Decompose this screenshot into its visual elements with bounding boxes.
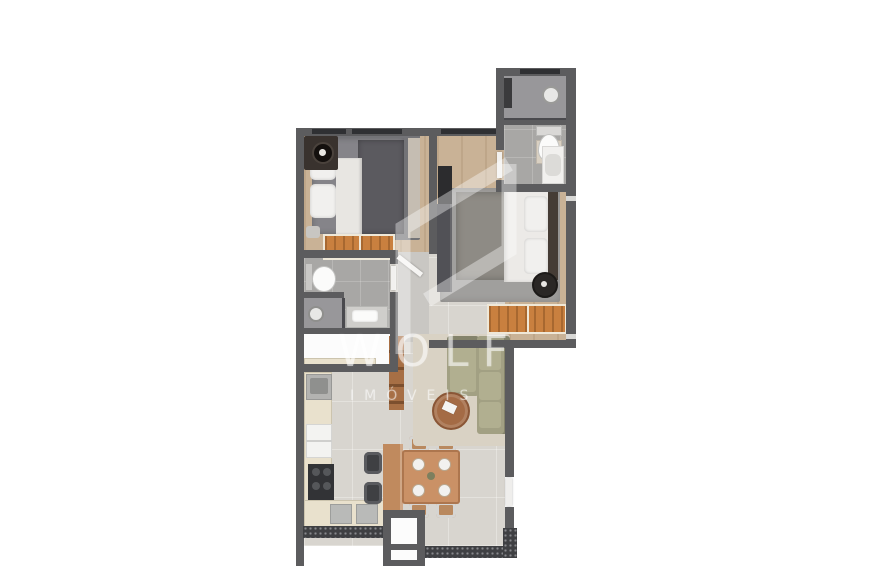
kitchen-fridge-line — [306, 440, 332, 442]
dining-plate-icon — [438, 484, 451, 497]
dining-plate-icon — [412, 458, 425, 471]
bathroom2-toilet — [312, 266, 336, 292]
floor-plan-image: WOLF IMÓVEIS — [0, 0, 870, 580]
wall-bathroom2-divider — [304, 292, 344, 298]
wall-bathroom1-left — [496, 68, 504, 150]
bathroom2-towels — [352, 310, 378, 322]
bedroom2-pillow — [524, 238, 548, 274]
window-top — [312, 129, 346, 134]
bedroom2-pillow — [524, 196, 548, 232]
kitchen-window-sill — [303, 526, 383, 538]
kitchen-counter-sink — [356, 504, 378, 524]
sofa-cushion — [479, 402, 501, 428]
dining-plate-icon — [412, 484, 425, 497]
window-bathroom1 — [520, 69, 560, 74]
entry-opening — [391, 518, 417, 544]
stove-burner-icon — [323, 468, 331, 476]
kitchen-counter-sink — [330, 504, 352, 524]
wall-entry-left — [383, 510, 391, 566]
bathroom1-shelf — [504, 78, 512, 108]
wall-shower-divider — [504, 120, 566, 125]
bedroom1-lamp-center — [319, 149, 326, 156]
bedroom2-headboard — [548, 190, 558, 280]
watermark-brand: WOLF — [338, 326, 522, 377]
window-top — [352, 129, 402, 134]
stove-burner-icon — [323, 482, 331, 490]
entry-door — [506, 478, 512, 506]
kitchen-sink-basin — [310, 378, 328, 394]
wall-entry-bottom — [383, 560, 425, 566]
living-window-sill — [425, 546, 507, 558]
wall-bedroom2-right — [566, 136, 576, 348]
stove-burner-icon — [312, 468, 320, 476]
bathroom2-shower-head-icon — [308, 306, 324, 322]
bar-stool — [364, 452, 382, 474]
bedroom2-pouf-center — [541, 281, 547, 287]
bedroom1-bed-sheet — [336, 158, 362, 234]
bedroom1-stool — [306, 226, 320, 238]
wall-entry-right — [417, 510, 425, 566]
bathroom1-sink — [545, 154, 561, 176]
stove-burner-icon — [312, 482, 320, 490]
dining-chair — [436, 502, 456, 518]
kitchen-peninsula-bar — [383, 444, 403, 518]
dining-plate-icon — [438, 458, 451, 471]
wall-bedroom1-bottom — [296, 250, 396, 258]
living-corner-sill — [503, 528, 517, 558]
bedroom1-pillow — [310, 184, 336, 218]
wall-notch — [566, 334, 576, 339]
wall-left — [296, 128, 304, 566]
watermark-tagline: IMÓVEIS — [350, 388, 478, 404]
bathroom2-shower-glass — [342, 298, 345, 328]
window-top — [441, 129, 496, 134]
entry-opening — [391, 550, 417, 560]
shower-head-icon — [542, 86, 560, 104]
wall-notch — [566, 196, 576, 201]
dining-centerpiece — [427, 472, 435, 480]
bar-stool — [364, 482, 382, 504]
